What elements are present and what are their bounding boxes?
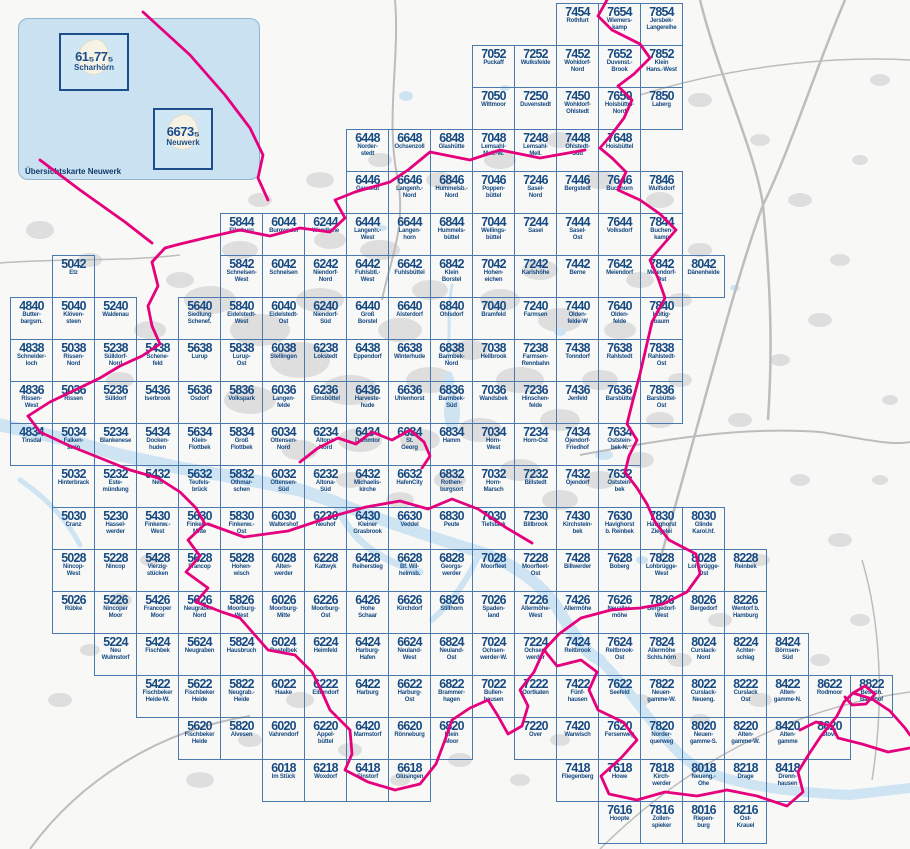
map-tile[interactable]: 6636Uhlenhorst <box>388 381 431 424</box>
map-tile[interactable]: 7428Billwerder <box>556 549 599 592</box>
map-tile[interactable]: 5436Iserbrook <box>136 381 179 424</box>
map-tile[interactable]: 5032Hinterbrack <box>52 465 95 508</box>
map-tile[interactable]: 7252Wulksfelde <box>514 45 557 88</box>
map-tile[interactable]: 5038Rissen- Nord <box>52 339 95 382</box>
map-tile[interactable]: 5636Osdorf <box>178 381 221 424</box>
map-tile[interactable]: 6626Kirchdorf <box>388 591 431 634</box>
map-tile[interactable]: 6036Langen- felde <box>262 381 305 424</box>
map-tile[interactable]: 7624Reitbrook- Ost <box>598 633 641 676</box>
map-tile[interactable]: 5426Francoper Moor <box>136 591 179 634</box>
map-tile[interactable]: 7222Oortkaten <box>514 675 557 718</box>
map-tile[interactable]: 7442Berne <box>556 255 599 298</box>
map-tile[interactable]: 7836Barsbüttel- Ost <box>640 381 683 424</box>
map-tile[interactable]: 5628Francop <box>178 549 221 592</box>
map-tile[interactable]: 7250Duvenstedt <box>514 87 557 130</box>
map-tile[interactable]: 6228Kattwyk <box>304 549 347 592</box>
map-tile[interactable]: 4840Butter- bargsm. <box>10 297 53 340</box>
map-tile[interactable]: 6828Georgs- werder <box>430 549 473 592</box>
map-tile[interactable]: 6026Moorburg- Mitte <box>262 591 305 634</box>
map-tile[interactable]: 5424Fischbek <box>136 633 179 676</box>
tile-number: 5844 <box>222 215 261 228</box>
map-tile[interactable]: 7826Bergedorf- West <box>640 591 683 634</box>
map-tile[interactable]: 7854Jersbek- Langereihe <box>640 3 683 46</box>
map-tile[interactable]: 6032Ottensen- Süd <box>262 465 305 508</box>
map-tile[interactable]: 7244Sasel <box>514 213 557 256</box>
map-tile[interactable]: 6646Langenh.- Nord <box>388 171 431 214</box>
tile-name: Eidelstedt- West <box>221 312 262 325</box>
map-tile[interactable]: 7640Olden- felde <box>598 297 641 340</box>
map-tile[interactable]: 5238Sülldorf- Nord <box>94 339 137 382</box>
map-tile[interactable]: 6218Woxdorf <box>304 759 347 802</box>
map-tile[interactable]: 5026Rübke <box>52 591 95 634</box>
tile-number: 7824 <box>642 635 681 648</box>
map-tile[interactable]: 7226Allermöhe- West <box>514 591 557 634</box>
tile-name: Niendorf- Nord <box>305 270 346 283</box>
tile-name: Neueng.- Ohe <box>683 774 724 787</box>
map-tile[interactable]: 7038Hellbrook <box>472 339 515 382</box>
map-tile[interactable]: 6236Eimsbüttel <box>304 381 347 424</box>
map-tile[interactable]: 6034Ottensen- Nord <box>262 423 305 466</box>
map-tile[interactable]: 6030Waltershof <box>262 507 305 550</box>
map-tile[interactable]: 7024Ochsen- werder-W. <box>472 633 515 676</box>
map-tile[interactable]: 6242Niendorf- Nord <box>304 255 347 298</box>
map-tile[interactable]: 8620Stove <box>808 717 851 760</box>
tile-number: 6646 <box>390 173 429 186</box>
map-tile[interactable]: 6830Peute <box>430 507 473 550</box>
map-tile[interactable]: 6244Wendlohe <box>304 213 347 256</box>
map-tile[interactable]: 6222Eißendorf <box>304 675 347 718</box>
map-tile[interactable]: 6638Winterhude <box>388 339 431 382</box>
map-tile[interactable]: 6232Altona- Süd <box>304 465 347 508</box>
map-tile[interactable]: 7824Allermöhe Schls.hörn <box>640 633 683 676</box>
map-tile[interactable]: 5638Lurup <box>178 339 221 382</box>
map-tile[interactable]: 7028Moorfleet <box>472 549 515 592</box>
map-tile[interactable]: 8022Curslack- Neueng. <box>682 675 725 718</box>
tile-name: Jersbek- Langereihe <box>641 18 682 31</box>
map-tile[interactable]: 6230Neuhof <box>304 507 347 550</box>
map-tile[interactable]: 8822Besenh. Bahnhof <box>850 675 893 718</box>
map-tile[interactable]: 5034Falken- stein <box>52 423 95 466</box>
map-tile[interactable]: 7820Norder- querweg <box>640 717 683 760</box>
tile-number: 7422 <box>558 677 597 690</box>
map-tile[interactable]: 7636Barsbüttel <box>598 381 641 424</box>
map-tile[interactable]: 5622Fischbeker Heide <box>178 675 221 718</box>
map-tile[interactable]: 8418Drenn- hausen <box>766 759 809 802</box>
map-tile[interactable]: 5042Etz <box>52 255 95 298</box>
map-tile[interactable]: 5830Finkenw.- Ost <box>220 507 263 550</box>
map-tile[interactable]: 7230Billbrook <box>514 507 557 550</box>
map-tile[interactable]: 6440Groß Borstel <box>346 297 389 340</box>
map-tile[interactable]: 7418Fliegenberg <box>556 759 599 802</box>
map-tile[interactable]: 6640Alsterdorf <box>388 297 431 340</box>
map-tile[interactable]: 7644Volksdorf <box>598 213 641 256</box>
map-tile[interactable]: 8016Riepen- burg <box>682 801 725 844</box>
map-tile[interactable]: 5820Alvesen <box>220 717 263 760</box>
map-tile[interactable]: 5624Neugraben <box>178 633 221 676</box>
map-tile[interactable]: 5422Fischbeker Heide-W. <box>136 675 179 718</box>
map-tile[interactable]: 6628Bf. Wil- helmsb. <box>388 549 431 592</box>
map-tile[interactable]: 7452Wohldorf- Nord <box>556 45 599 88</box>
map-tile[interactable]: 7032Horn- Marsch <box>472 465 515 508</box>
map-tile[interactable]: 7242Karlshöhe <box>514 255 557 298</box>
tile-name: Neuen- gamme-W. <box>641 690 682 703</box>
map-tile[interactable]: 7630Havighorst b. Reinbek <box>598 507 641 550</box>
tile-number: 4836 <box>12 383 51 396</box>
map-tile[interactable]: 6020Vahrendorf <box>262 717 305 760</box>
map-tile[interactable]: 5232Este- mündung <box>94 465 137 508</box>
tile-name: Finkenw.- Mitte <box>179 522 220 535</box>
map-tile[interactable]: 7430Kirchstein- bek <box>556 507 599 550</box>
map-tile[interactable]: 7228Moorfleet- Ost <box>514 549 557 592</box>
map-tile[interactable]: 6620Rönneburg <box>388 717 431 760</box>
map-tile[interactable]: 6028Alten- werder <box>262 549 305 592</box>
map-tile[interactable]: 5832Othmar- schen <box>220 465 263 508</box>
map-tile[interactable]: 7026Spaden- land <box>472 591 515 634</box>
map-tile[interactable]: 7618Howe <box>598 759 641 802</box>
map-tile[interactable]: 7236Hinschen- felde <box>514 381 557 424</box>
map-tile[interactable]: 5836Volkspark <box>220 381 263 424</box>
tile-number: 6626 <box>390 593 429 606</box>
map-tile[interactable]: 5842Schnelsen- West <box>220 255 263 298</box>
map-tile[interactable]: 6430Kleiner Grasbrook <box>346 507 389 550</box>
map-tile[interactable]: 5828Hohen- wisch <box>220 549 263 592</box>
tile-name: Curslack Ost <box>725 690 766 703</box>
map-tile[interactable]: 6826Stillhorn <box>430 591 473 634</box>
tile-name: Rissen- Nord <box>53 354 94 367</box>
map-tile[interactable]: 4836Rissen- West <box>10 381 53 424</box>
map-tile[interactable]: 6624Neuland- West <box>388 633 431 676</box>
map-tile[interactable]: 5030Cranz <box>52 507 95 550</box>
map-tile[interactable]: 5634Klein- Flottbek <box>178 423 221 466</box>
map-tile[interactable]: 6022Haake <box>262 675 305 718</box>
map-tile[interactable]: 7852Klein Hans.-West <box>640 45 683 88</box>
map-tile[interactable]: 7632Oststein- bek <box>598 465 641 508</box>
map-tile[interactable]: 8622Rodmoor <box>808 675 851 718</box>
map-tile[interactable]: 6842Klein Borstel <box>430 255 473 298</box>
map-tile[interactable]: 7446Bergstedt <box>556 171 599 214</box>
tile-number: 6648 <box>390 131 429 144</box>
map-tile[interactable]: 6840Ohlsdorf <box>430 297 473 340</box>
tile-number: 6836 <box>432 383 471 396</box>
map-tile[interactable]: 7036Wandsbek <box>472 381 515 424</box>
tile-number: 6828 <box>432 551 471 564</box>
tile-name: Klöven- steen <box>53 312 94 325</box>
map-tile[interactable]: 6446Garstedt <box>346 171 389 214</box>
map-tile[interactable]: 6432Michaelis- kirche <box>346 465 389 508</box>
tile-number: 6428 <box>348 551 387 564</box>
map-tile[interactable]: 6634St. Georg <box>388 423 431 466</box>
inset-tile-neuwerk[interactable]: 6673₅ Neuwerk <box>153 108 213 170</box>
map-tile[interactable]: 7422Fünf- hausen <box>556 675 599 718</box>
map-tile[interactable]: 8020Neuen- gamme-S. <box>682 717 725 760</box>
map-tile[interactable]: 5826Moorburg- West <box>220 591 263 634</box>
tile-name: Olden- felde <box>599 312 640 325</box>
tile-number: 7042 <box>474 257 513 270</box>
map-tile[interactable]: 8422Alten- gamme-N. <box>766 675 809 718</box>
inset-tile-scharhoern[interactable]: 61₅77₅ Scharhörn <box>59 33 129 91</box>
map-tile[interactable]: 6434Dammtor <box>346 423 389 466</box>
map-tile[interactable]: 7022Bullen- hausen <box>472 675 515 718</box>
map-tile[interactable]: 6426Hohe Schaar <box>346 591 389 634</box>
map-tile[interactable]: 7420Warwisch <box>556 717 599 760</box>
map-tile[interactable]: 6224Heimfeld <box>304 633 347 676</box>
map-tile[interactable]: 6832Rothen- burgsort <box>430 465 473 508</box>
map-tile[interactable]: 6240Niendorf- Süd <box>304 297 347 340</box>
map-tile[interactable]: 6042Schnelsen <box>262 255 305 298</box>
map-tile[interactable]: 8028Lohbrügge- Ost <box>682 549 725 592</box>
map-tile[interactable]: 7648Hoisbüttel <box>598 129 641 172</box>
map-tile[interactable]: 6422Harburg <box>346 675 389 718</box>
tile-number: 7040 <box>474 299 513 312</box>
tile-number: 6444 <box>348 215 387 228</box>
map-tile[interactable]: 7620Fersenweg <box>598 717 641 760</box>
tile-number: 6636 <box>390 383 429 396</box>
map-tile[interactable]: 6848Glashütte <box>430 129 473 172</box>
map-tile[interactable]: 6418Sinstorf <box>346 759 389 802</box>
map-tile[interactable]: 7224Ochsen- werder <box>514 633 557 676</box>
map-tile[interactable]: 7816Zollen- spieker <box>640 801 683 844</box>
map-tile[interactable]: 6822Brammer- hagen <box>430 675 473 718</box>
tile-name: Lemsahl- Mell. <box>515 144 556 157</box>
tile-number: 7820 <box>642 719 681 732</box>
map-tile[interactable]: 7246Sasel- Nord <box>514 171 557 214</box>
tile-number: 7048 <box>474 131 513 144</box>
map-tile[interactable]: 7628Boberg <box>598 549 641 592</box>
map-tile[interactable]: 6622Harburg- Ost <box>388 675 431 718</box>
map-tile[interactable]: 7652Duvenst.- Brook <box>598 45 641 88</box>
map-tile[interactable]: 7034Horn- West <box>472 423 515 466</box>
map-tile[interactable]: 8018Neueng.- Ohe <box>682 759 725 802</box>
map-tile[interactable]: 8218Drage <box>724 759 767 802</box>
map-tile[interactable]: 7838Rahlstedt- Ost <box>640 339 683 382</box>
map-tile[interactable]: 7248Lemsahl- Mell. <box>514 129 557 172</box>
tile-name: Oststein- bek <box>599 480 640 493</box>
map-tile[interactable]: 7238Farmsen- Rennbahn <box>514 339 557 382</box>
map-tile[interactable]: 7830Havighorst Ziegelei <box>640 507 683 550</box>
tile-name: Harburg- Ost <box>389 690 430 703</box>
map-tile[interactable]: 6044Burgwedel <box>262 213 305 256</box>
map-tile[interactable]: 8220Alten- gamme-W. <box>724 717 767 760</box>
map-tile[interactable]: 5224Neu Wulmstorf <box>94 633 137 676</box>
map-tile[interactable]: 6220Appel- büttel <box>304 717 347 760</box>
map-tile[interactable]: 7434Öjendorf- Friedhof <box>556 423 599 466</box>
map-tile[interactable]: 4834Tinsdal <box>10 423 53 466</box>
map-tile[interactable]: 7436Jenfeld <box>556 381 599 424</box>
map-tile[interactable]: 5230Hassel- werder <box>94 507 137 550</box>
map-tile[interactable]: 6618Glüsingen <box>388 759 431 802</box>
map-tile[interactable]: 6838Barmbek- Nord <box>430 339 473 382</box>
map-tile[interactable]: 7040Bramfeld <box>472 297 515 340</box>
map-tile[interactable]: 6824Neuland- Ost <box>430 633 473 676</box>
map-tile[interactable]: 5226Nincoper Moor <box>94 591 137 634</box>
map-tile[interactable]: 5040Klöven- steen <box>52 297 95 340</box>
map-tile[interactable]: 5428Vierzig- stücken <box>136 549 179 592</box>
tile-name: Allermöhe Schls.hörn <box>641 648 682 661</box>
map-tile[interactable]: 6836Barmbek- Süd <box>430 381 473 424</box>
map-tile[interactable]: 7220Over <box>514 717 557 760</box>
map-tile[interactable]: 7622Seefeld <box>598 675 641 718</box>
map-tile[interactable]: 5626Neugraben- Nord <box>178 591 221 634</box>
map-tile[interactable]: 6820Klein Moor <box>430 717 473 760</box>
map-tile[interactable]: 6238Lokstedt <box>304 339 347 382</box>
map-tile[interactable]: 7616Hoopte <box>598 801 641 844</box>
tile-number: 6024 <box>264 635 303 648</box>
map-tile[interactable]: 7818Kirch- werder <box>640 759 683 802</box>
tile-number: 6840 <box>432 299 471 312</box>
tile-name: Schneider- loch <box>11 354 52 367</box>
map-tile[interactable]: 7454Rothfurt <box>556 3 599 46</box>
map-tile[interactable]: 7046Poppen- büttel <box>472 171 515 214</box>
map-tile[interactable]: 7448Ohlstedt- Süd <box>556 129 599 172</box>
map-tile[interactable]: 7634Oststein- bek-N. <box>598 423 641 466</box>
map-tile[interactable]: 7846Wulfsdorf <box>640 171 683 214</box>
map-tile[interactable]: 8216Ost- Krauel <box>724 801 767 844</box>
map-tile[interactable]: 7638Rahlstedt <box>598 339 641 382</box>
map-tile[interactable]: 6642Fuhlsbüttel <box>388 255 431 298</box>
map-tile[interactable]: 8224Achter- schlag <box>724 633 767 676</box>
map-tile[interactable]: 6424Harburg- Hafen <box>346 633 389 676</box>
map-tile[interactable]: 7654Wiemers- kamp <box>598 3 641 46</box>
tile-name: Sülldorf- Nord <box>95 354 136 367</box>
map-tile[interactable]: 6428Reiherstieg <box>346 549 389 592</box>
map-tile[interactable]: 7424Reitbrook <box>556 633 599 676</box>
map-tile[interactable]: 7850Laberg <box>640 87 683 130</box>
tile-number: 6020 <box>264 719 303 732</box>
map-tile[interactable]: 8024Curslack- Nord <box>682 633 725 676</box>
map-tile[interactable]: 6436Harveste- hude <box>346 381 389 424</box>
map-tile[interactable]: 5240Waldenau <box>94 297 137 340</box>
map-tile[interactable]: 6438Eppendorf <box>346 339 389 382</box>
map-tile[interactable]: 6444Langenh.- West <box>346 213 389 256</box>
map-tile[interactable]: 8226Wentorf b. Hamburg <box>724 591 767 634</box>
map-tile[interactable]: 7444Sasel- Ost <box>556 213 599 256</box>
map-tile[interactable]: 6024Bostelbek <box>262 633 305 676</box>
map-tile[interactable]: 6234Altona- Nord <box>304 423 347 466</box>
map-tile[interactable]: 5822Neugrab.- Heide <box>220 675 263 718</box>
tile-number: 7438 <box>558 341 597 354</box>
map-tile[interactable]: 7840Höltig- baum <box>640 297 683 340</box>
tile-number: 5624 <box>180 635 219 648</box>
map-tile[interactable]: 5432Neß <box>136 465 179 508</box>
tile-number: 6022 <box>264 677 303 690</box>
map-tile[interactable]: 5620Fischbeker Heide <box>178 717 221 760</box>
map-tile[interactable]: 7232Billstedt <box>514 465 557 508</box>
map-tile[interactable]: 5228Nincop <box>94 549 137 592</box>
tile-name: Fischbeker Heide <box>179 690 220 703</box>
map-tile[interactable]: 5840Eidelstedt- West <box>220 297 263 340</box>
tile-name: Zollen- spieker <box>641 816 682 829</box>
map-tile[interactable]: 5632Teufels- brück <box>178 465 221 508</box>
map-tile[interactable]: 6038Stellingen <box>262 339 305 382</box>
map-tile[interactable]: 5234Blankenese <box>94 423 137 466</box>
map-tile[interactable]: 7828Lohbrügge- West <box>640 549 683 592</box>
tile-number: 5840 <box>222 299 261 312</box>
tile-number: 5826 <box>222 593 261 606</box>
map-tile[interactable]: 6018Im Stück <box>262 759 305 802</box>
map-tile[interactable]: 5236Sülldorf <box>94 381 137 424</box>
map-tile[interactable]: 7822Neuen- gamme-W. <box>640 675 683 718</box>
map-tile[interactable]: 6846Hummelsb.- Nord <box>430 171 473 214</box>
map-tile[interactable]: 8042Dänenheide <box>682 255 725 298</box>
map-tile[interactable]: 5824Hausbruch <box>220 633 263 676</box>
map-tile[interactable]: 7440Olden- felde-W <box>556 297 599 340</box>
map-tile[interactable]: 6442Fuhlsbtl.- West <box>346 255 389 298</box>
map-tile[interactable]: 8026Bergedorf <box>682 591 725 634</box>
map-tile[interactable]: 6834Hamm <box>430 423 473 466</box>
map-tile[interactable]: 6420Marmstorf <box>346 717 389 760</box>
map-tile[interactable]: 6632HafenCity <box>388 465 431 508</box>
map-tile[interactable]: 8424Börnsen- Süd <box>766 633 809 676</box>
map-tile[interactable]: 5430Finkenw.- West <box>136 507 179 550</box>
tile-number: 5834 <box>222 425 261 438</box>
map-tile[interactable]: 7048Lemsahl- Mell.-W. <box>472 129 515 172</box>
map-tile[interactable]: 6448Norder- stedt <box>346 129 389 172</box>
map-tile[interactable]: 7650Hoisbüttel- Nord <box>598 87 641 130</box>
map-tile[interactable]: 7646Buckhorn <box>598 171 641 214</box>
map-tile[interactable]: 4838Schneider- loch <box>10 339 53 382</box>
tile-name: Klein Moor <box>431 732 472 745</box>
map-tile[interactable]: 6630Veddel <box>388 507 431 550</box>
map-tile[interactable]: 5844Ellerburg <box>220 213 263 256</box>
map-tile[interactable]: 5630Finkenw.- Mitte <box>178 507 221 550</box>
tile-number: 6034 <box>264 425 303 438</box>
tile-number: 7638 <box>600 341 639 354</box>
tile-number: 7448 <box>558 131 597 144</box>
map-tile[interactable]: 5838Lurup- Ost <box>220 339 263 382</box>
map-tile[interactable]: 7052Puckaff <box>472 45 515 88</box>
map-tile[interactable]: 7030Tiefstack <box>472 507 515 550</box>
map-tile[interactable]: 7432Öjendorf <box>556 465 599 508</box>
map-tile[interactable]: 7642Meiendorf <box>598 255 641 298</box>
tile-number: 7238 <box>516 341 555 354</box>
map-tile[interactable]: 5438Schene- feld <box>136 339 179 382</box>
tile-name: Vierzig- stücken <box>137 564 178 577</box>
map-tile[interactable]: 5434Docken- huden <box>136 423 179 466</box>
map-tile[interactable]: 7426Allermöhe <box>556 591 599 634</box>
map-tile[interactable]: 8222Curslack Ost <box>724 675 767 718</box>
map-tile[interactable]: 7842Meiendorf- Ost <box>640 255 683 298</box>
map-tile[interactable]: 7050Wittmoor <box>472 87 515 130</box>
map-tile[interactable]: 7044Wellings- büttel <box>472 213 515 256</box>
map-tile[interactable]: 6226Moorburg- Ost <box>304 591 347 634</box>
tile-number: 6234 <box>306 425 345 438</box>
map-tile[interactable]: 6648Ochsenzoll <box>388 129 431 172</box>
map-tile[interactable]: 7042Hohen- eichen <box>472 255 515 298</box>
map-tile[interactable]: 7438Tonndorf <box>556 339 599 382</box>
tile-number: 7026 <box>474 593 513 606</box>
map-tile[interactable]: 7844Buchen- kamp <box>640 213 683 256</box>
map-tile[interactable]: 8420Alten- gamme <box>766 717 809 760</box>
map-tile[interactable]: 8228Reinbek <box>724 549 767 592</box>
map-tile[interactable]: 7450Wohldorf- Ohlstedt <box>556 87 599 130</box>
map-tile[interactable]: 6644Langen- horn <box>388 213 431 256</box>
map-tile[interactable]: 7240Farmsen <box>514 297 557 340</box>
map-tile[interactable]: 5640Siedlung Schenef. <box>178 297 221 340</box>
map-tile[interactable]: 8030Glinde Karol.hf. <box>682 507 725 550</box>
map-tile[interactable]: 6844Hummels- büttel <box>430 213 473 256</box>
map-tile[interactable]: 6040Eidelstedt- Ost <box>262 297 305 340</box>
map-tile[interactable]: 7234Horn-Ost <box>514 423 557 466</box>
tile-number: 7828 <box>642 551 681 564</box>
map-tile[interactable]: 7626Neualler- möhe <box>598 591 641 634</box>
tile-number: 8016 <box>684 803 723 816</box>
map-tile[interactable]: 5036Rissen <box>52 381 95 424</box>
tile-name: Klein Borstel <box>431 270 472 283</box>
map-tile[interactable]: 5834Groß Flottbek <box>220 423 263 466</box>
tile-name: Moorburg- West <box>221 606 262 619</box>
tile-name: Buchen- kamp <box>641 228 682 241</box>
map-tile[interactable]: 5028Nincop- West <box>52 549 95 592</box>
